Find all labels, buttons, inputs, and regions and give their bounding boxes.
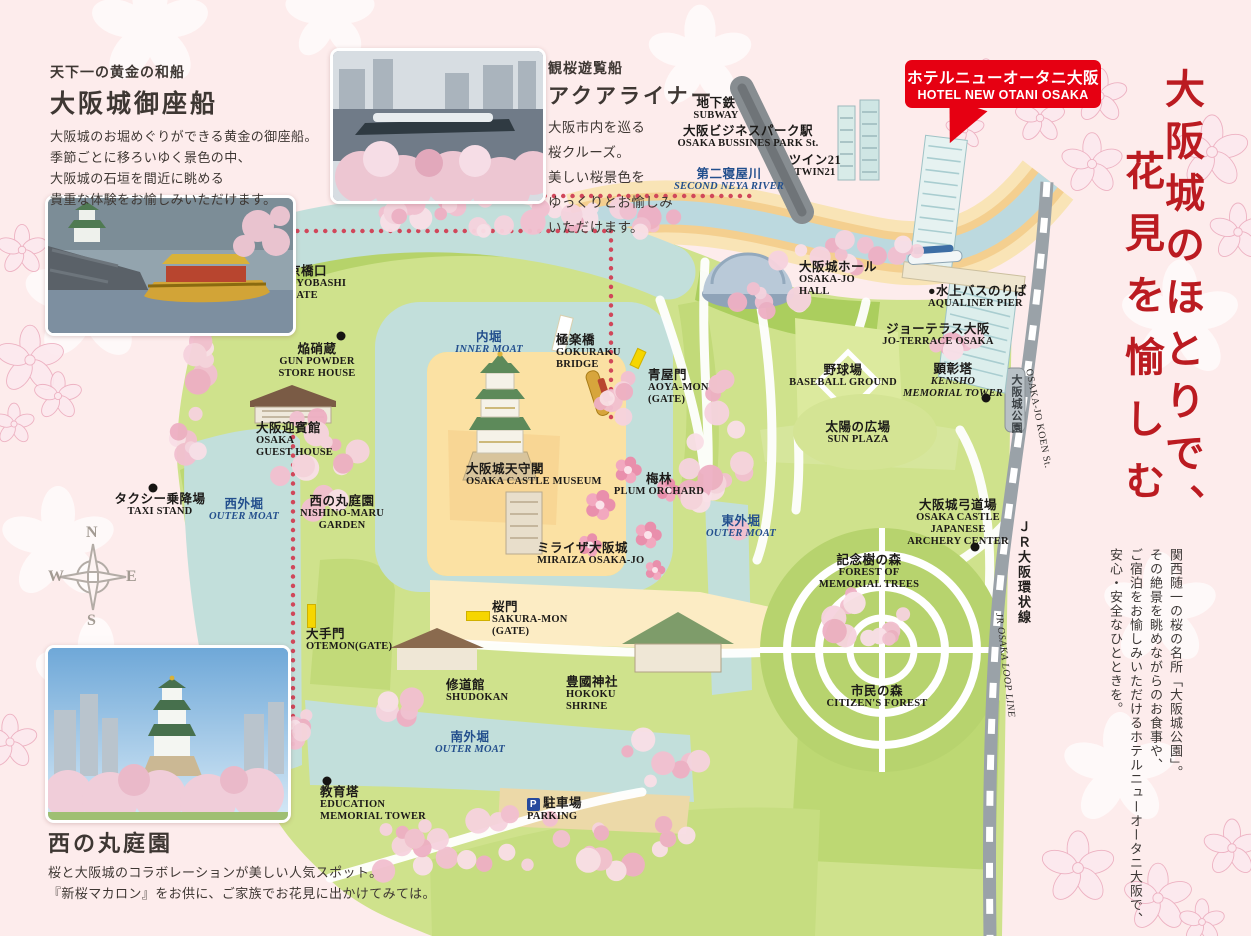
gozabune-boat-photo	[45, 195, 296, 336]
tagline-col3: ご宿泊をお愉しみいただけるホテルニューオータニ大阪で、	[1126, 548, 1145, 926]
gozabune-body: 大阪城のお堀めぐりができる黄金の御座船。 季節ごとに移ろいゆく景色の中、 大阪城…	[50, 126, 350, 210]
nishinomaru-garden-photo	[45, 645, 291, 823]
compass-east: E	[126, 568, 137, 586]
miraiza-illustration	[506, 492, 542, 554]
tagline-col1: 関西随一の桜の名所「大阪城公園」。	[1166, 548, 1185, 780]
gozabune-title: 大阪城御座船	[50, 84, 350, 120]
twin21-illustration	[838, 100, 879, 180]
station-name-osakajo-koen: 大阪城公園	[1008, 374, 1024, 434]
compass-north: N	[86, 524, 98, 542]
aqualiner-photo	[330, 48, 546, 204]
headline-line2: 花見を愉しむ	[1112, 150, 1170, 522]
tagline-col4: 安心・安全なひとときを。	[1106, 548, 1125, 716]
gozabune-subtitle: 天下一の黄金の和船	[50, 62, 350, 82]
aqualiner-info-block: 観桜遊覧船 アクアライナー 大阪市内を巡る 桜クルーズ。 美しい桜景色を ゆっく…	[548, 58, 718, 241]
aqualiner-title: アクアライナー	[548, 80, 718, 110]
nishinomaru-title: 西の丸庭園	[48, 826, 448, 858]
nishinomaru-info-block: 西の丸庭園 桜と大阪城のコラボレーションが美しい人気スポット。 『新桜マカロン』…	[48, 826, 448, 904]
compass-south: S	[87, 612, 96, 630]
jr-loop-line-label-jp: ＪＲ大阪環状線	[1014, 520, 1033, 625]
sun-plaza-lawn	[793, 394, 937, 470]
hotel-badge-en: HOTEL NEW OTANI OSAKA	[917, 88, 1088, 102]
hotel-new-otani-badge: ホテルニューオータニ大阪 HOTEL NEW OTANI OSAKA	[905, 60, 1101, 108]
compass-rose: N S W E	[48, 524, 140, 632]
nishinomaru-body: 桜と大阪城のコラボレーションが美しい人気スポット。 『新桜マカロン』をお供に、ご…	[48, 862, 448, 904]
hotel-badge-jp: ホテルニューオータニ大阪	[907, 66, 1099, 88]
tagline-col2: その絶景を眺めながらのお食事や、	[1146, 548, 1165, 772]
memorial-forest-gardens	[760, 528, 1004, 772]
osaka-castle-park-brochure: { "headline": { "line1": "大阪城のほとりで、", "l…	[0, 0, 1251, 936]
aqualiner-subtitle: 観桜遊覧船	[548, 58, 718, 78]
aqualiner-body: 大阪市内を巡る 桜クルーズ。 美しい桜景色を ゆっくりとお愉しみ いただけます。	[548, 116, 718, 241]
gozabune-info-block: 天下一の黄金の和船 大阪城御座船 大阪城のお堀めぐりができる黄金の御座船。 季節…	[50, 62, 350, 210]
compass-west: W	[48, 568, 64, 586]
